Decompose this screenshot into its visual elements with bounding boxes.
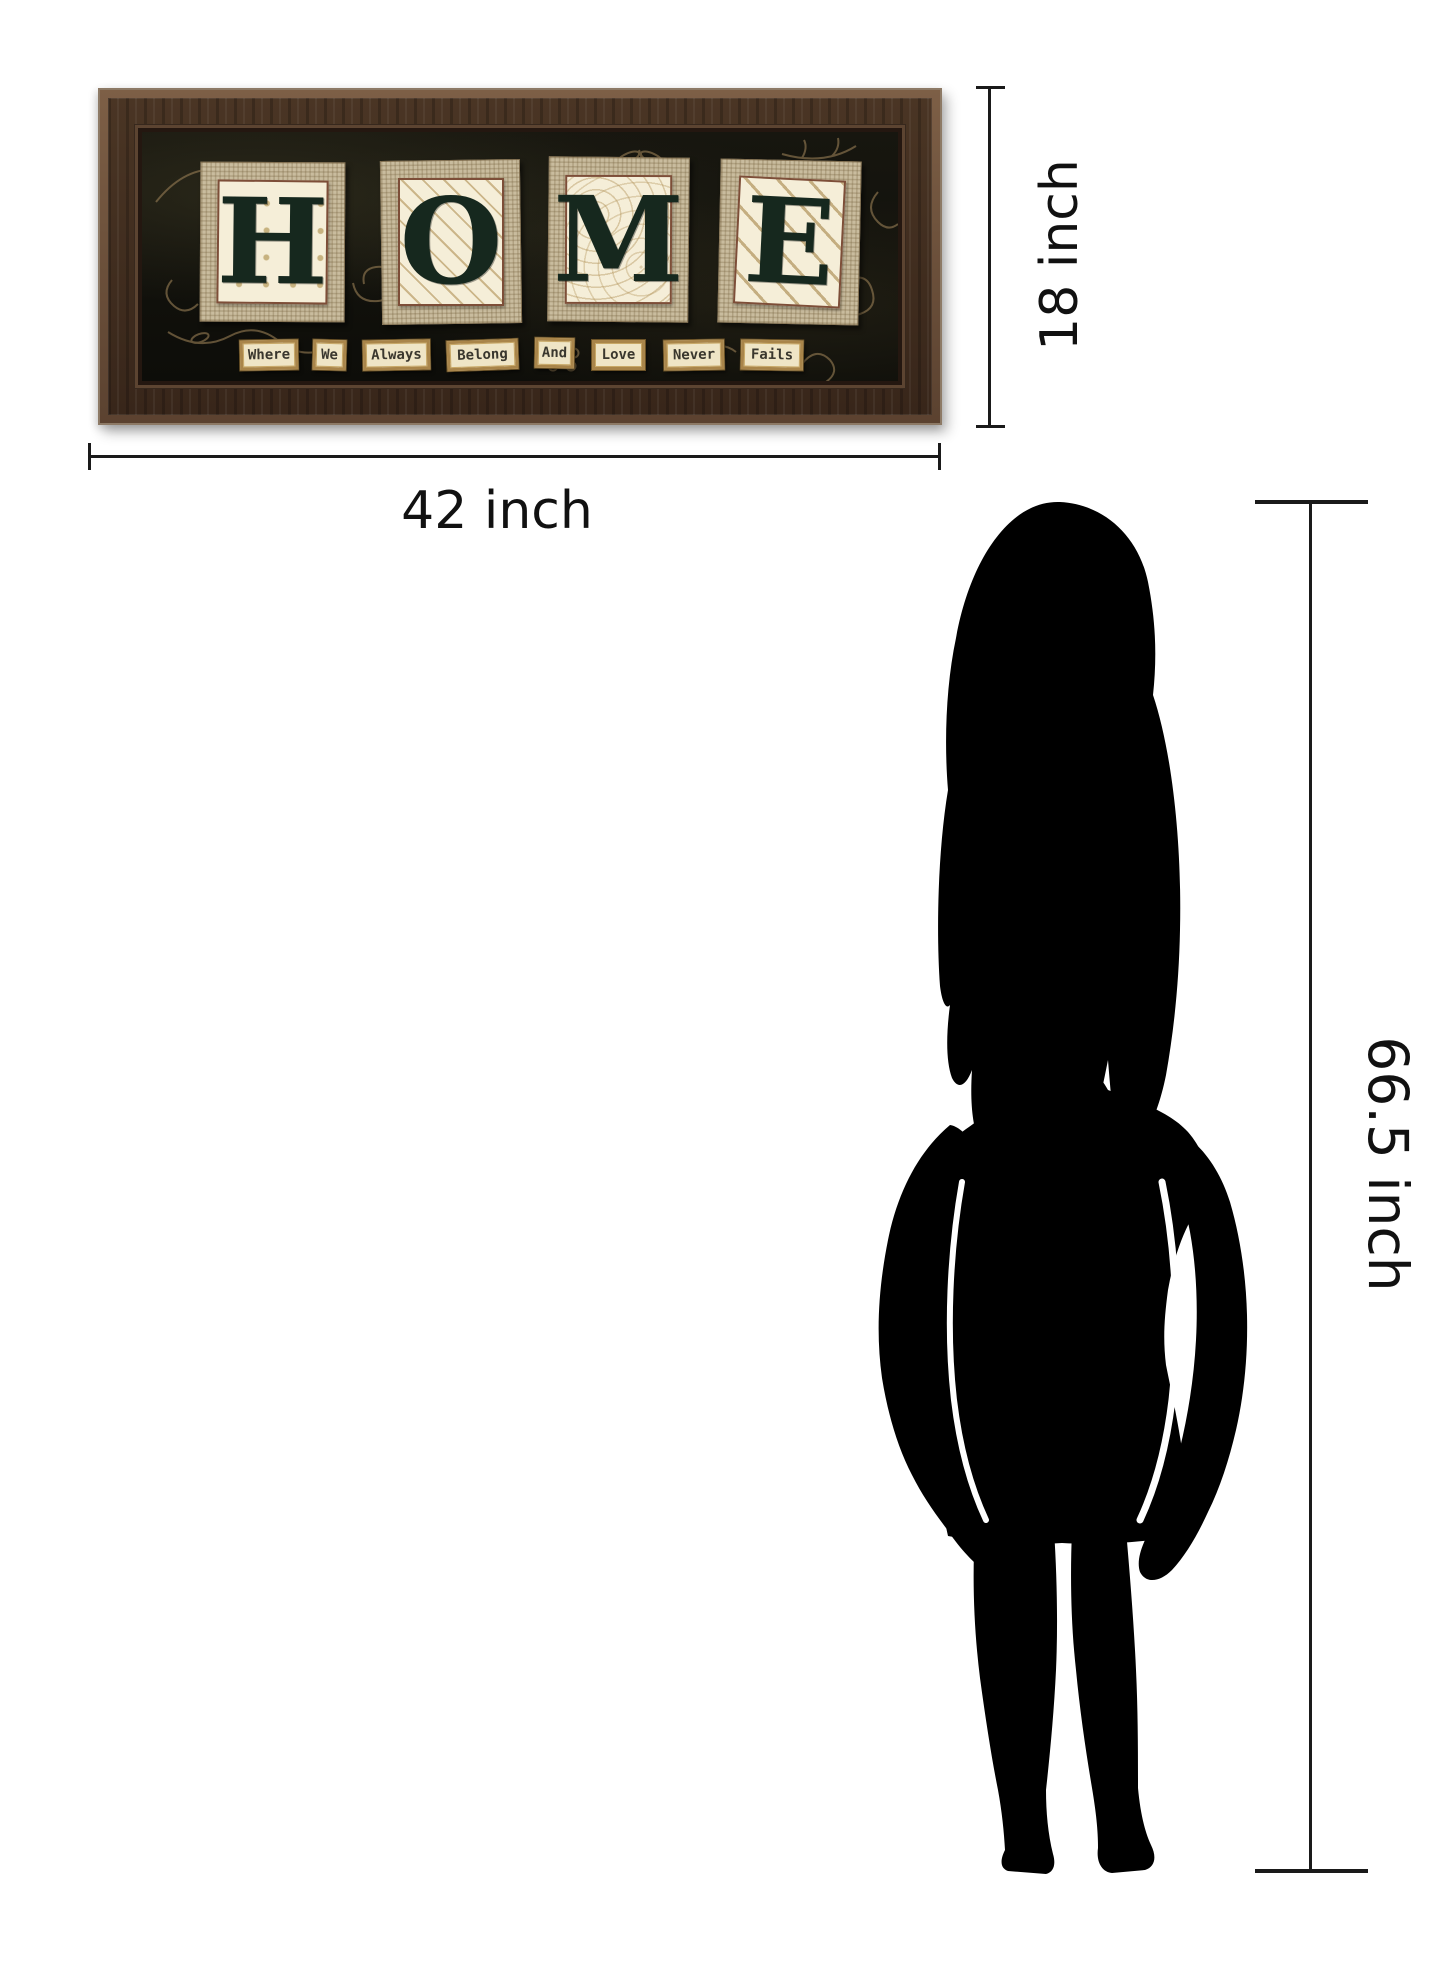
word-tile-love: Love — [592, 340, 645, 370]
letter-o: O — [400, 183, 503, 301]
letter-panel-swirls: M — [565, 175, 672, 304]
height-dimension-label: 18 inch — [1032, 105, 1092, 405]
word-tile-where: Where — [240, 339, 299, 370]
word-tile-never: Never — [664, 339, 725, 370]
word-tile-belong: Belong — [446, 339, 518, 371]
width-dimension-cap-left — [88, 443, 91, 470]
letter-e: E — [742, 181, 838, 303]
letter-tile-e: E — [717, 159, 861, 326]
framed-art: H O M — [98, 88, 942, 425]
width-dimension-cap-right — [938, 443, 941, 470]
word-tile-and: And — [535, 338, 575, 369]
width-dimension-line — [90, 455, 940, 458]
height-dimension-cap-bottom — [976, 425, 1005, 428]
letter-panel-dots: H — [216, 179, 328, 304]
frame-inner-edge: H O M — [138, 128, 902, 385]
letter-panel-wide-stripes: E — [733, 175, 846, 308]
person-height-dimension-cap-top — [1255, 500, 1368, 504]
word-tile-always: Always — [363, 339, 431, 370]
letter-tile-o: O — [380, 159, 522, 325]
letter-panel-stripes: O — [398, 178, 504, 306]
product-size-diagram: H O M — [0, 0, 1445, 1973]
word-tile-we: We — [313, 340, 347, 371]
frame-outer-molding: H O M — [100, 90, 940, 423]
height-dimension-line — [988, 88, 991, 428]
person-height-dimension-label: 66.5 inch — [1350, 994, 1418, 1334]
letter-tile-m: M — [547, 156, 690, 322]
frame-inner-lip: H O M — [134, 124, 906, 389]
person-height-dimension-cap-bottom — [1255, 1869, 1368, 1873]
letter-tile-h: H — [200, 162, 346, 323]
word-tile-fails: Fails — [741, 339, 804, 370]
woman-silhouette — [850, 490, 1270, 1880]
width-dimension-label: 42 inch — [347, 483, 647, 540]
art-background: H O M — [142, 132, 898, 381]
height-dimension-cap-top — [976, 86, 1005, 89]
letter-m: M — [553, 180, 684, 298]
person-height-dimension-line — [1309, 502, 1312, 1873]
frame-wood-band: H O M — [108, 98, 932, 415]
letter-h: H — [216, 182, 329, 301]
